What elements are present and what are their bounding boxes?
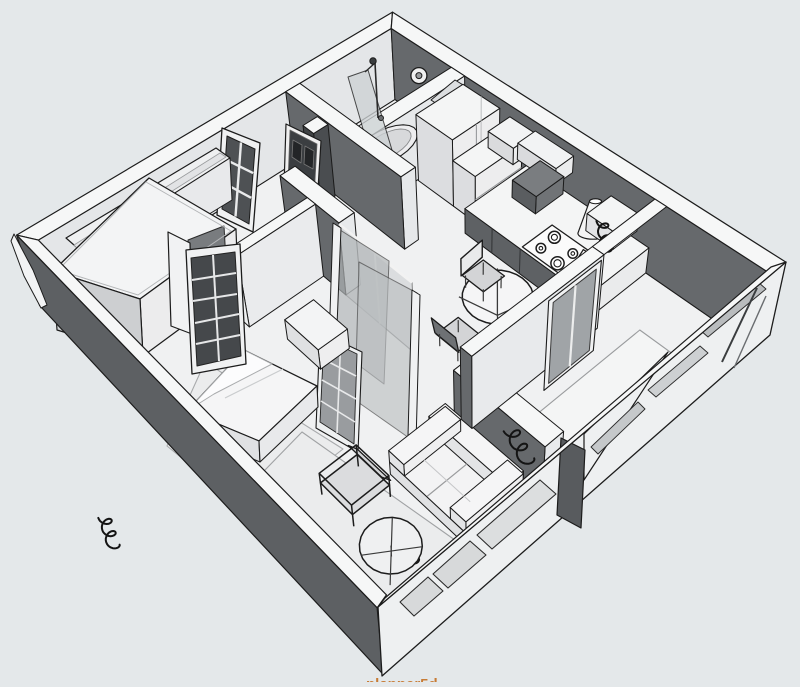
- svg-text:planner5d: planner5d: [366, 676, 438, 682]
